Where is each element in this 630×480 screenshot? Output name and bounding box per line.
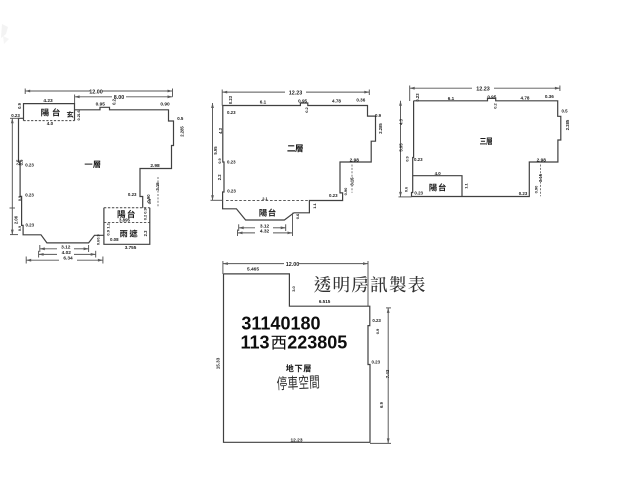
svg-text:0.23: 0.23 [372, 360, 381, 365]
svg-text:0.9: 0.9 [375, 113, 382, 118]
svg-text:3.15: 3.15 [155, 182, 160, 191]
svg-text:1.1: 1.1 [106, 222, 111, 228]
svg-text:0.2: 0.2 [143, 214, 148, 220]
svg-text:0.2: 0.2 [112, 98, 117, 104]
svg-text:2.285: 2.285 [180, 126, 185, 137]
svg-text:3.15: 3.15 [349, 177, 354, 186]
svg-text:0.23: 0.23 [414, 157, 423, 162]
svg-text:2.06: 2.06 [14, 215, 19, 224]
svg-text:2.98: 2.98 [537, 157, 547, 163]
svg-text:0.9: 0.9 [106, 229, 111, 235]
svg-text:2.285: 2.285 [565, 119, 570, 130]
svg-text:0.5: 0.5 [562, 109, 569, 114]
svg-text:4.78: 4.78 [521, 96, 530, 101]
svg-text:3.12: 3.12 [61, 244, 71, 250]
svg-text:0.90: 0.90 [343, 187, 348, 196]
svg-text:6.9: 6.9 [379, 401, 384, 407]
svg-text:113: 113 [241, 333, 270, 353]
svg-text:0.90: 0.90 [534, 185, 539, 194]
svg-text:12.23: 12.23 [290, 438, 302, 444]
svg-text:0.9: 0.9 [375, 328, 380, 334]
svg-text:4.78: 4.78 [332, 99, 341, 104]
svg-text:0.23: 0.23 [519, 191, 528, 196]
svg-text:223805: 223805 [287, 333, 347, 353]
svg-text:0.2: 0.2 [304, 106, 309, 112]
svg-text:3.0: 3.0 [291, 285, 296, 291]
svg-text:0.23: 0.23 [26, 222, 35, 227]
svg-text:0.08: 0.08 [110, 237, 119, 242]
svg-text:0.23: 0.23 [329, 193, 338, 198]
svg-text:12.23: 12.23 [476, 87, 490, 93]
svg-text:0.9: 0.9 [147, 198, 152, 204]
svg-text:2.3: 2.3 [143, 230, 148, 236]
svg-text:4.3: 4.3 [399, 118, 404, 124]
svg-text:0.9: 0.9 [19, 159, 24, 165]
svg-text:3.12: 3.12 [260, 223, 270, 229]
svg-text:0.23: 0.23 [11, 113, 20, 118]
svg-text:31140180: 31140180 [241, 314, 320, 334]
svg-text:5.465: 5.465 [247, 267, 259, 273]
svg-text:0.6: 0.6 [405, 187, 409, 192]
svg-text:0.9: 0.9 [18, 226, 22, 231]
svg-text:0.23: 0.23 [128, 192, 137, 197]
svg-text:0.6: 0.6 [295, 213, 300, 219]
svg-text:6.1: 6.1 [448, 96, 455, 101]
svg-text:0.5: 0.5 [177, 116, 184, 121]
svg-text:12.00: 12.00 [89, 89, 103, 95]
svg-text:0.23: 0.23 [25, 193, 34, 198]
svg-text:0.95: 0.95 [96, 102, 106, 108]
svg-text:4.0: 4.0 [47, 121, 54, 126]
svg-text:6.515: 6.515 [319, 299, 331, 304]
svg-text:0.36: 0.36 [545, 94, 554, 99]
svg-text:2.1: 2.1 [262, 196, 268, 201]
svg-text:0.9: 0.9 [18, 196, 22, 201]
svg-text:1.6: 1.6 [77, 110, 81, 115]
svg-text:0.23: 0.23 [25, 162, 34, 167]
svg-text:6.34: 6.34 [63, 256, 73, 262]
svg-text:0.2: 0.2 [77, 115, 81, 120]
svg-text:0.2: 0.2 [492, 102, 497, 108]
svg-text:0.23: 0.23 [227, 160, 236, 165]
svg-text:4.23: 4.23 [43, 98, 53, 104]
svg-text:1.1: 1.1 [463, 182, 468, 188]
svg-text:0.23: 0.23 [228, 95, 233, 104]
svg-text:1.1: 1.1 [312, 202, 317, 208]
svg-text:2.2: 2.2 [217, 174, 222, 180]
svg-text:0.23: 0.23 [372, 318, 381, 323]
svg-text:3.895: 3.895 [119, 217, 131, 222]
svg-text:0.9: 0.9 [218, 158, 222, 163]
svg-text:12.00: 12.00 [286, 262, 300, 268]
svg-text:3.755: 3.755 [125, 245, 137, 250]
svg-text:4.3: 4.3 [218, 127, 223, 133]
svg-text:2.98: 2.98 [150, 163, 160, 169]
svg-text:5.95: 5.95 [398, 143, 403, 152]
svg-text:0.90: 0.90 [160, 102, 170, 108]
svg-text:2.285: 2.285 [378, 123, 383, 134]
svg-text:0.23: 0.23 [227, 110, 236, 115]
svg-text:0.23: 0.23 [227, 188, 236, 193]
svg-text:0.36: 0.36 [356, 97, 365, 102]
svg-text:0.23: 0.23 [414, 191, 423, 196]
svg-text:0.9: 0.9 [96, 234, 100, 239]
svg-text:0.9: 0.9 [17, 102, 22, 108]
svg-text:4.32: 4.32 [260, 228, 270, 234]
svg-text:3.15: 3.15 [538, 173, 543, 182]
svg-text:0.6: 0.6 [96, 240, 100, 245]
svg-text:0.9: 0.9 [143, 207, 148, 213]
svg-text:5.95: 5.95 [213, 146, 218, 155]
svg-text:4.0: 4.0 [435, 171, 442, 176]
svg-text:6.1: 6.1 [260, 99, 267, 104]
svg-text:12.23: 12.23 [289, 90, 303, 96]
svg-text:2.98: 2.98 [350, 157, 360, 163]
svg-text:7.43: 7.43 [385, 369, 390, 378]
svg-text:0.9: 0.9 [405, 156, 409, 161]
svg-text:4.02: 4.02 [62, 250, 72, 256]
svg-text:15.33: 15.33 [216, 357, 221, 369]
